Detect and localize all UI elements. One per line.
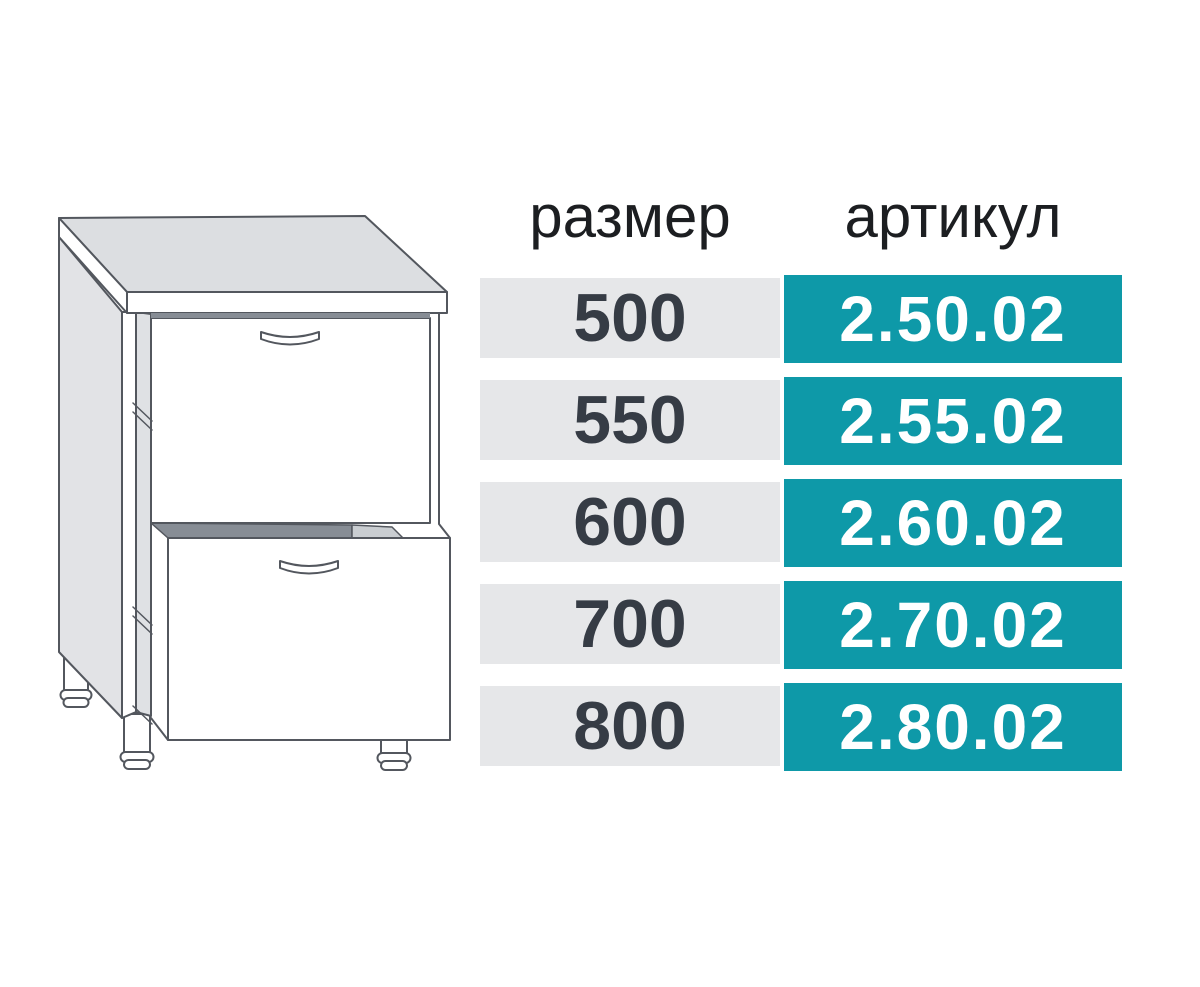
cabinet-front-stile xyxy=(122,312,136,718)
size-cell: 800 xyxy=(480,686,780,766)
cabinet-leg-front-left xyxy=(121,714,154,769)
article-cell: 2.55.02 xyxy=(784,377,1122,465)
drawer-side-top xyxy=(352,525,403,538)
size-cell: 500 xyxy=(480,278,780,358)
cabinet-illustration xyxy=(40,200,470,780)
article-cell: 2.70.02 xyxy=(784,581,1122,669)
catalog-page: размер артикул 500 2.50.02 550 2.55.02 6… xyxy=(0,0,1200,987)
cabinet-inner-strip xyxy=(136,312,151,716)
size-cell: 600 xyxy=(480,482,780,562)
article-cell: 2.60.02 xyxy=(784,479,1122,567)
drawer-gap-shadow xyxy=(151,523,352,538)
table-row: 500 2.50.02 xyxy=(480,278,1122,358)
size-article-table: размер артикул 500 2.50.02 550 2.55.02 6… xyxy=(480,180,1122,788)
column-header-size: размер xyxy=(480,180,780,254)
table-row: 550 2.55.02 xyxy=(480,380,1122,460)
cabinet-side-panel xyxy=(59,237,122,718)
column-header-article: артикул xyxy=(784,180,1122,254)
upper-drawer-front xyxy=(151,318,430,523)
table-row: 800 2.80.02 xyxy=(480,686,1122,766)
table-header-row: размер артикул xyxy=(480,180,1122,254)
size-cell: 550 xyxy=(480,380,780,460)
under-counter-shadow xyxy=(151,313,430,318)
carcass-right-edge xyxy=(439,313,450,538)
table-row: 700 2.70.02 xyxy=(480,584,1122,664)
size-cell: 700 xyxy=(480,584,780,664)
carcass-bottom-edge xyxy=(151,718,168,740)
countertop-front-edge xyxy=(127,292,447,313)
article-cell: 2.80.02 xyxy=(784,683,1122,771)
table-row: 600 2.60.02 xyxy=(480,482,1122,562)
article-cell: 2.50.02 xyxy=(784,275,1122,363)
